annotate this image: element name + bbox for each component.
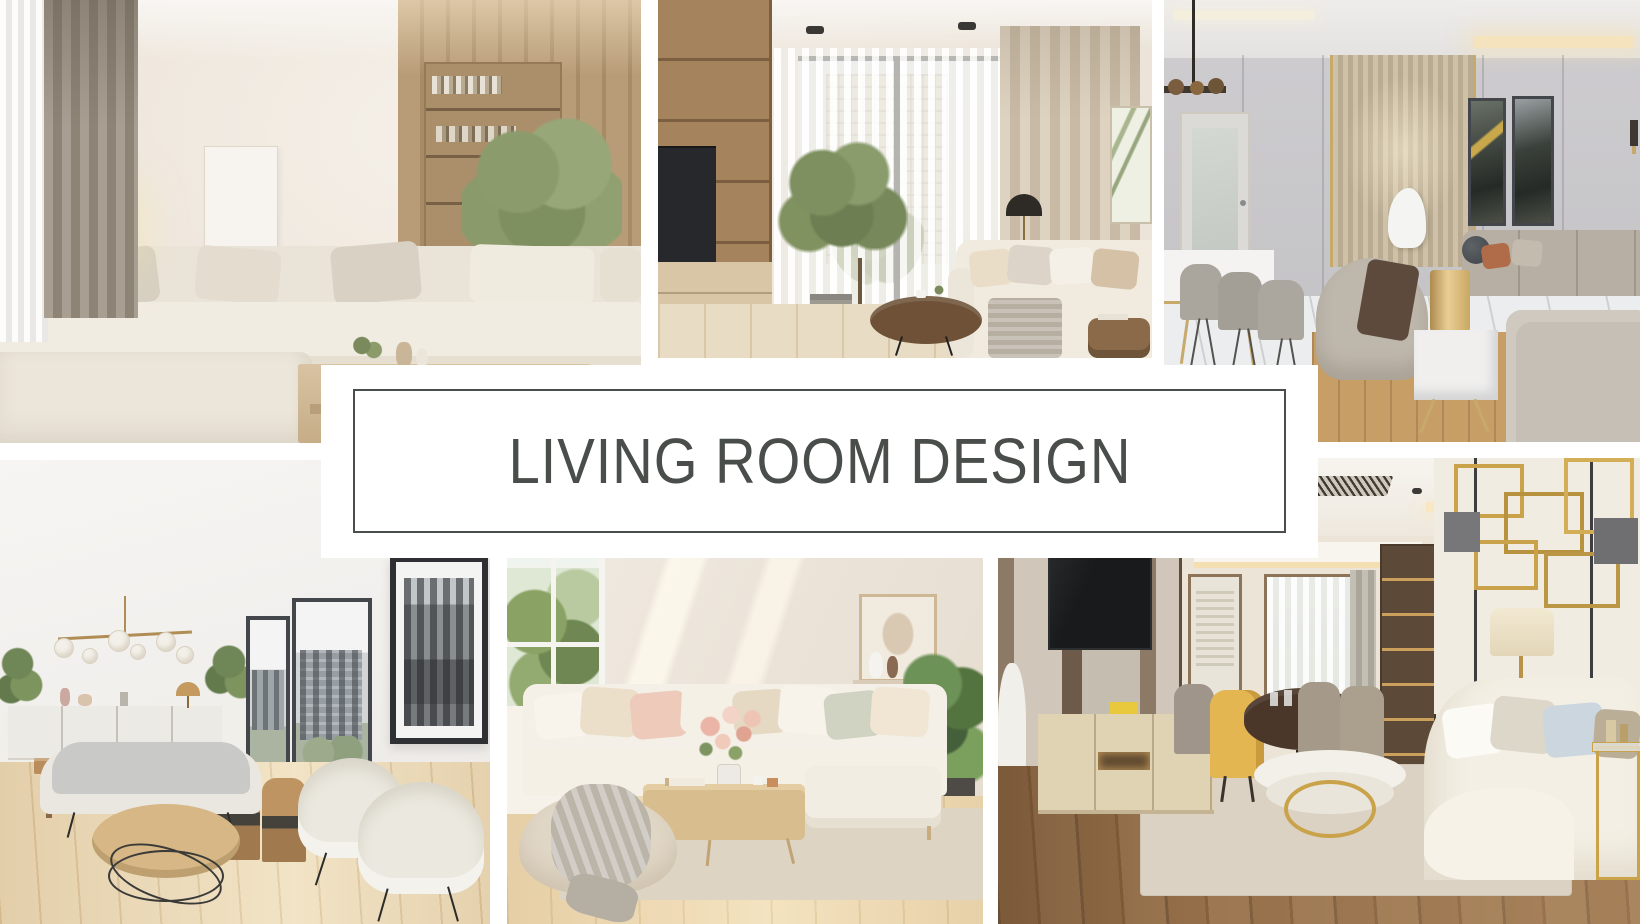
pillow — [194, 244, 282, 305]
chandelier-globe — [156, 632, 176, 652]
dining-chair — [1298, 682, 1340, 754]
page-title: LIVING ROOM DESIGN — [508, 424, 1131, 498]
knit-throw — [551, 784, 651, 888]
gold-art-panel — [1594, 518, 1638, 564]
pillow — [469, 244, 595, 306]
mug — [767, 778, 778, 787]
recessed-light — [1412, 488, 1422, 494]
vase — [869, 652, 883, 678]
abstract-artwork — [1512, 96, 1554, 226]
pillow — [1006, 244, 1055, 286]
table-lamp — [1490, 608, 1554, 656]
sofa-chaise — [0, 352, 312, 443]
vase — [887, 656, 898, 678]
plant-sprig — [930, 282, 948, 298]
pillow — [1049, 247, 1095, 286]
wall-art — [204, 146, 278, 252]
city-view — [252, 670, 284, 730]
wall-sconce — [1630, 120, 1638, 146]
wall-art — [1110, 106, 1152, 224]
gold-art-frame — [1474, 540, 1538, 590]
coffee-table — [870, 296, 982, 344]
chandelier-globe — [108, 630, 130, 652]
drape-curtain — [44, 0, 138, 318]
skyline-artwork — [404, 578, 474, 726]
chandelier-globe — [54, 638, 74, 658]
wine-glass — [1284, 690, 1292, 706]
sculpture — [1388, 188, 1426, 248]
moodboard-collage: LIVING ROOM DESIGN — [0, 0, 1640, 924]
dining-chair — [1174, 684, 1214, 754]
recessed-light — [958, 22, 976, 30]
pendant-disc — [1168, 79, 1184, 95]
chandelier-globe — [176, 646, 194, 664]
title-banner-border: LIVING ROOM DESIGN — [353, 389, 1286, 533]
wine-glass — [1270, 692, 1278, 706]
decor-object — [78, 694, 92, 706]
books — [432, 76, 502, 94]
pillow — [600, 248, 641, 302]
dining-chair — [1258, 280, 1304, 340]
side-table-top — [1592, 742, 1640, 752]
lamp-stem — [187, 696, 189, 708]
dining-chair — [1218, 272, 1262, 330]
marble-cube-table — [1414, 330, 1498, 400]
decor-object — [120, 692, 128, 706]
chandelier-globe — [130, 644, 146, 660]
sheer-curtain — [0, 0, 48, 342]
ac-vent — [1311, 476, 1393, 496]
potted-tree — [776, 138, 908, 266]
book — [1098, 314, 1128, 320]
sofa — [1506, 310, 1640, 442]
plant-sprig — [350, 332, 384, 362]
mug — [753, 776, 763, 785]
tree-trunk — [858, 258, 862, 304]
title-banner: LIVING ROOM DESIGN — [321, 365, 1318, 558]
pendant-disc — [1208, 78, 1224, 94]
yellow-decor-box — [1110, 702, 1138, 714]
brass-table-lamp — [1430, 270, 1470, 332]
bottle — [1606, 720, 1616, 742]
plant — [0, 642, 44, 714]
tv — [658, 146, 716, 264]
pillow — [1511, 239, 1543, 268]
sofa-chaise — [805, 766, 941, 828]
cove-light — [1174, 10, 1314, 20]
pendant-disc — [1190, 81, 1204, 95]
door-handle — [1240, 200, 1246, 206]
pillow — [330, 240, 423, 305]
decor-object — [60, 688, 70, 706]
pillow — [869, 686, 930, 738]
chandelier-globe — [82, 648, 98, 664]
dining-chair — [1180, 264, 1222, 320]
door-glass — [1192, 128, 1238, 258]
chandelier-stem — [124, 596, 126, 636]
window-blinds — [1196, 586, 1234, 670]
sofa-arm — [1424, 788, 1574, 880]
side-table — [1088, 318, 1150, 358]
cove-light — [1474, 36, 1634, 48]
ceiling — [1164, 0, 1640, 58]
armchair — [358, 782, 484, 894]
throw-blanket — [988, 298, 1062, 358]
pillow — [1090, 248, 1140, 291]
sofa-cushion — [52, 742, 250, 794]
bottle — [1620, 724, 1628, 742]
gold-table-base — [1284, 780, 1376, 838]
books — [665, 778, 705, 786]
recessed-light — [806, 26, 824, 34]
photo-top-middle-living-room — [658, 0, 1152, 358]
dining-chair — [1340, 686, 1384, 760]
abstract-artwork — [1468, 98, 1506, 226]
city-view — [300, 650, 362, 740]
flower-bouquet — [685, 696, 769, 772]
glass-side-table — [1596, 746, 1640, 880]
pendant-stem — [1192, 0, 1195, 86]
gold-art-panel — [1444, 512, 1480, 552]
pillow — [1480, 242, 1511, 270]
console-niche — [1098, 752, 1150, 770]
cup — [916, 290, 926, 298]
photo-bottom-middle-living-room — [507, 558, 983, 924]
sofa-leg — [927, 826, 931, 840]
